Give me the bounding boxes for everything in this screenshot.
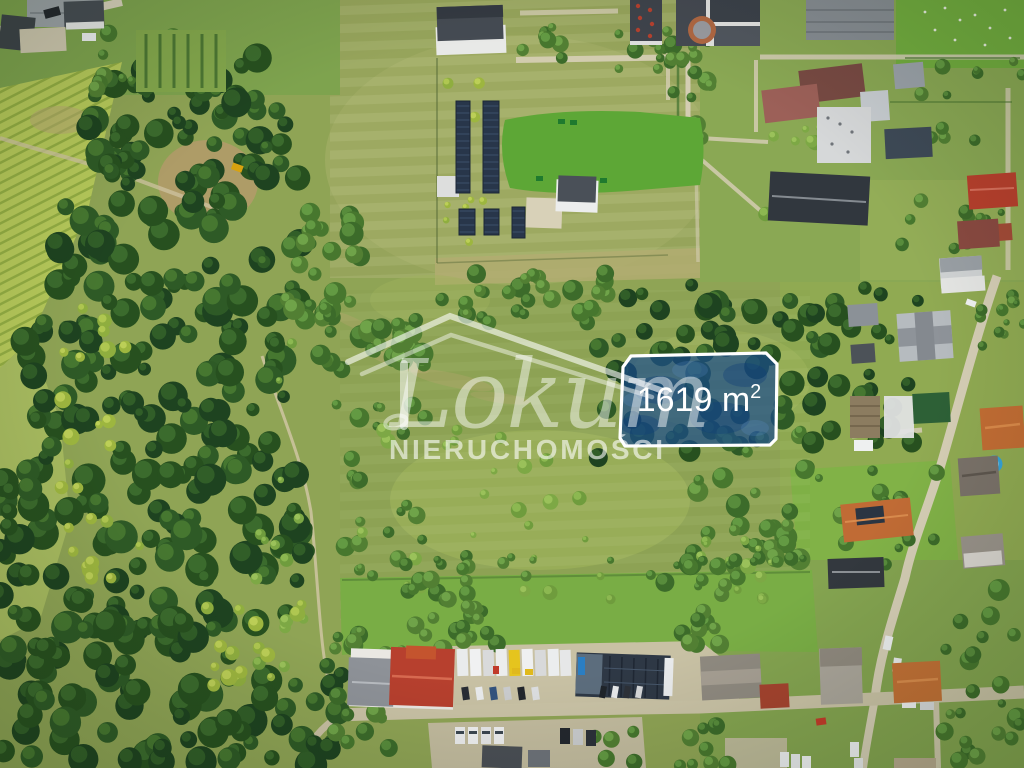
listing-aerial-photo: 1619 m2 Lokum NIERUCHOMOŚCI — [0, 0, 1024, 768]
vignette — [0, 0, 1024, 768]
aerial-photo-canvas: 1619 m2 Lokum NIERUCHOMOŚCI — [0, 0, 1024, 768]
